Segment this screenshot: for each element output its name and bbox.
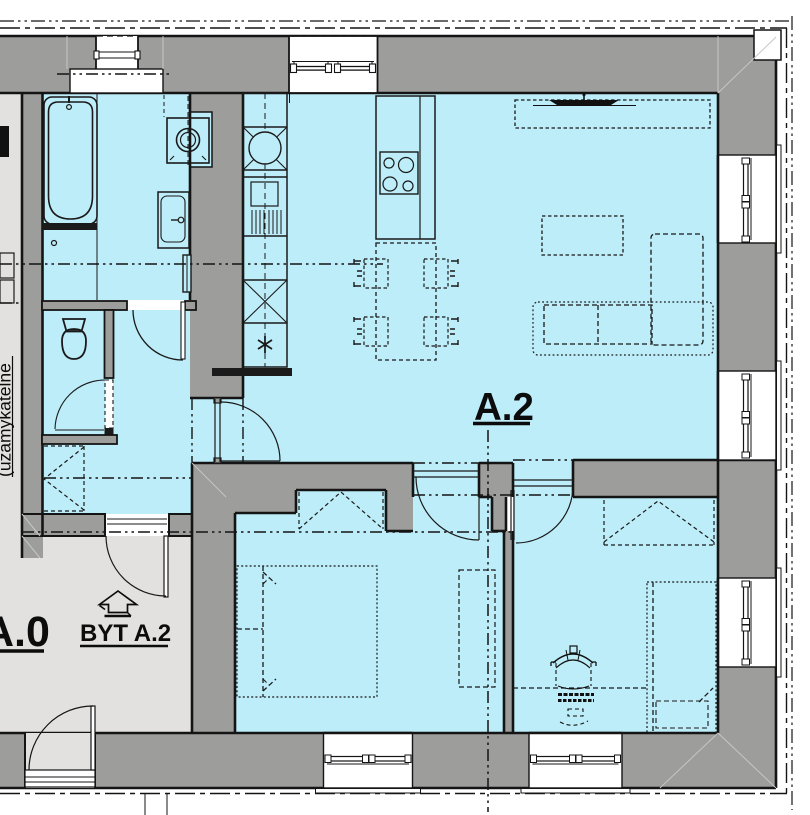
svg-text:A.0: A.0	[0, 608, 50, 656]
svg-text:BYT A.2: BYT A.2	[80, 620, 171, 647]
